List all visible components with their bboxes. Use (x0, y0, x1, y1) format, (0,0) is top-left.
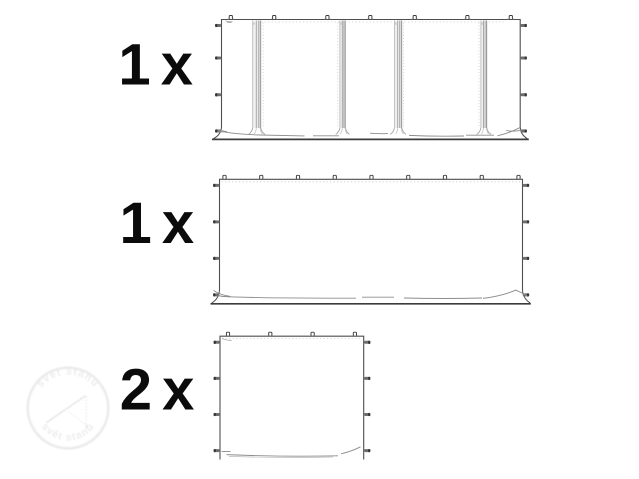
svg-text:2 x: 2 x (120, 358, 194, 423)
svg-text:svět stanů: svět stanů (39, 421, 97, 444)
svg-text:1 x: 1 x (120, 191, 194, 256)
svg-text:svět stanů: svět stanů (35, 366, 101, 389)
svg-text:1 x: 1 x (118, 32, 192, 97)
